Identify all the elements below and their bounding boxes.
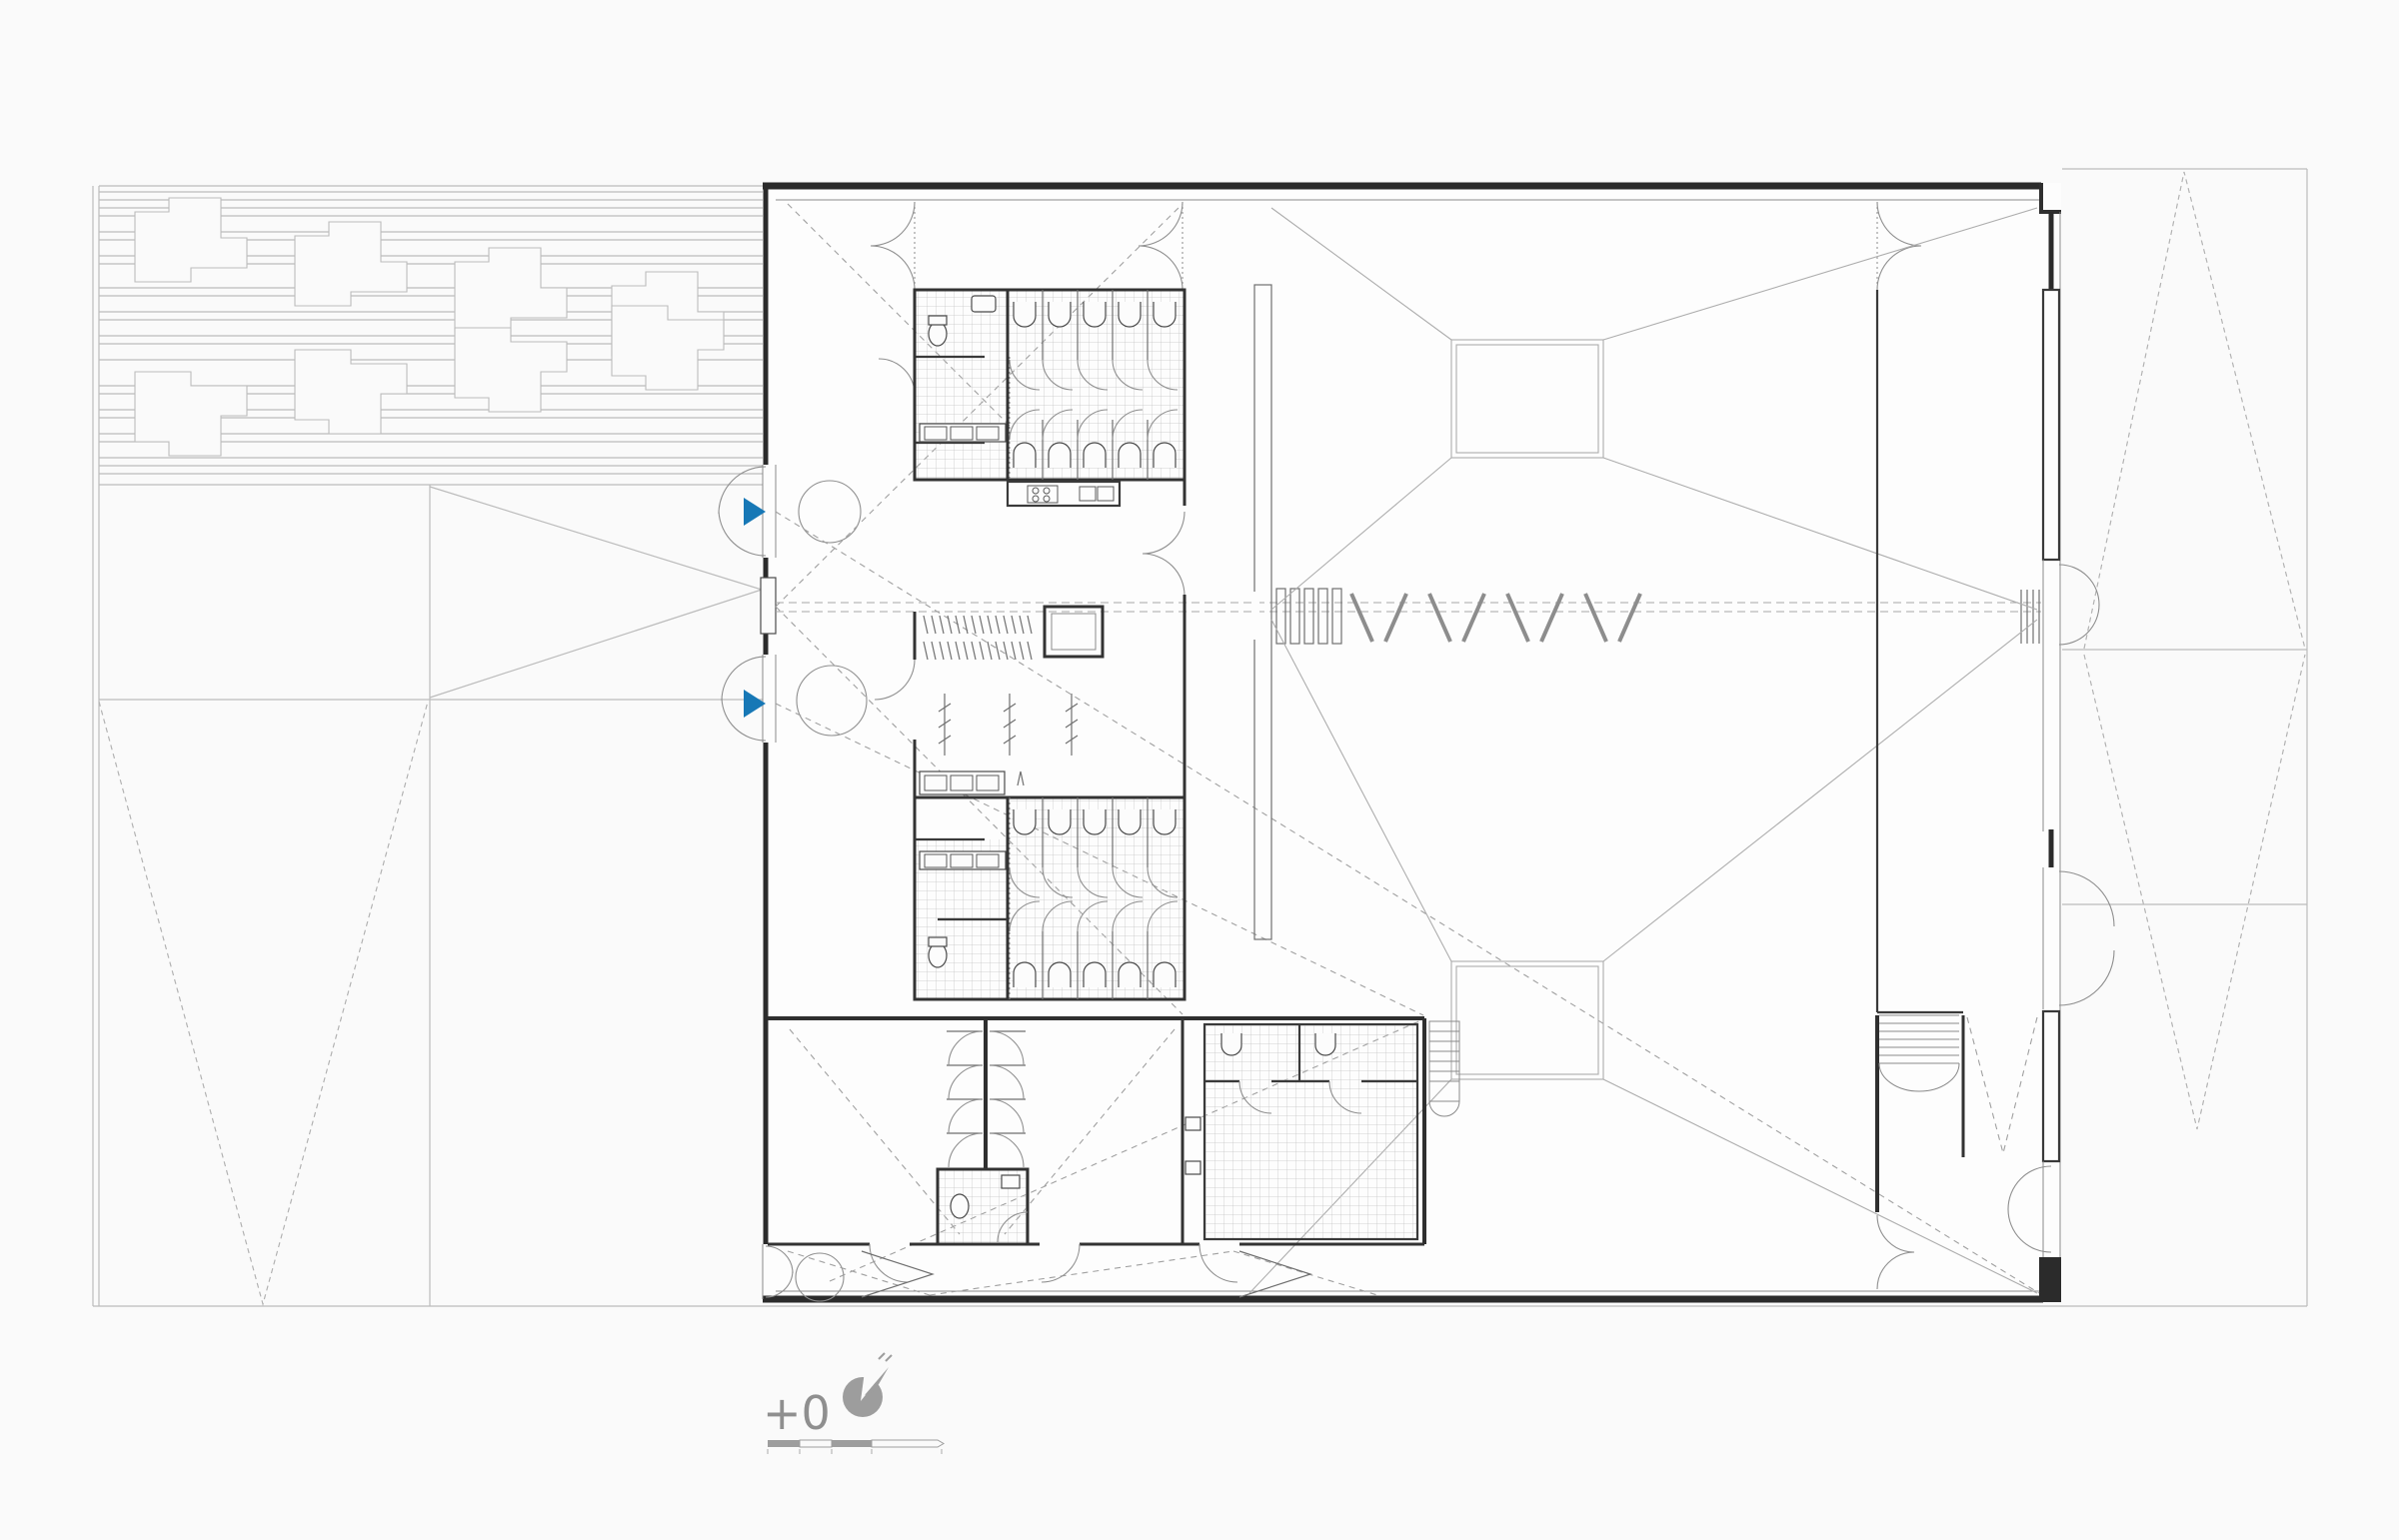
- tree-triangle-right-upper: [2084, 172, 2305, 649]
- wc-small: [938, 1169, 1028, 1244]
- toilet-block-upper: [915, 290, 1185, 480]
- titleblock: +0: [763, 1353, 944, 1454]
- forecourt-lines: [99, 485, 763, 1306]
- tree-triangle-left: [99, 702, 428, 1304]
- floor-plan-sheet: +0: [0, 0, 2399, 1540]
- floor-plan-drawing: +0: [0, 0, 2399, 1540]
- site-contour-lines-right: [2062, 650, 2307, 904]
- tree-triangle-right-lower: [2084, 655, 2305, 1129]
- level-label: +0: [763, 1386, 831, 1440]
- building: [719, 183, 2114, 1302]
- north-arrow-icon: [843, 1353, 893, 1417]
- terraced-garden: [99, 186, 763, 485]
- shower-room: [1186, 1024, 1417, 1239]
- recessed-door-leaf: [761, 578, 776, 634]
- scale-bar: [768, 1440, 944, 1454]
